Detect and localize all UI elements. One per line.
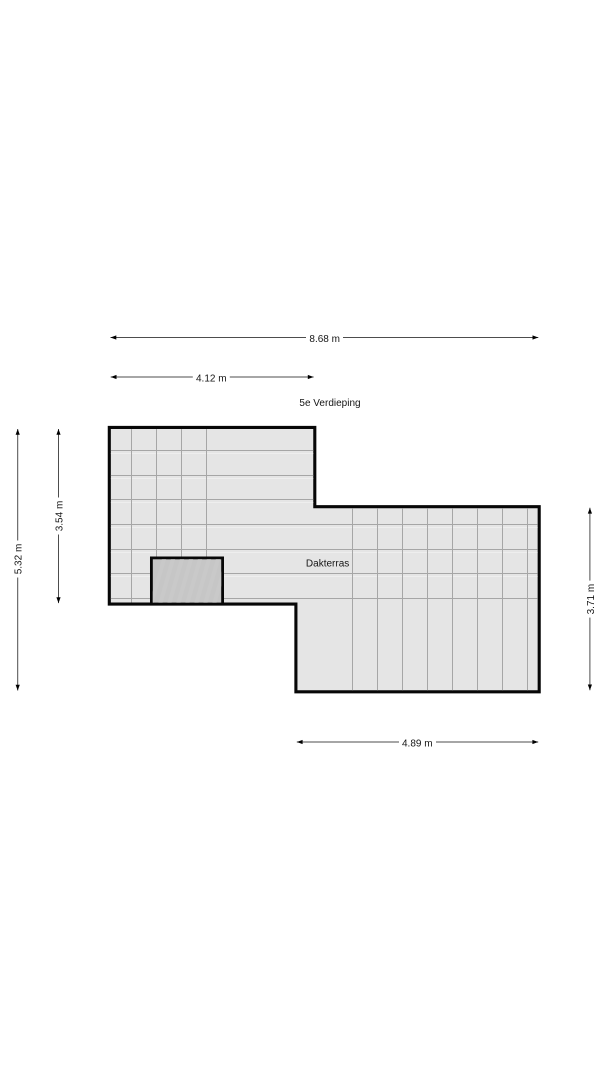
svg-text:5.32 m: 5.32 m [14, 544, 25, 575]
svg-text:8.68 m: 8.68 m [309, 334, 340, 345]
svg-text:4.12 m: 4.12 m [196, 373, 227, 384]
svg-text:5e Verdieping: 5e Verdieping [299, 398, 360, 409]
svg-text:3.71 m: 3.71 m [586, 584, 597, 615]
svg-text:4.89 m: 4.89 m [402, 738, 433, 749]
svg-text:Dakterras: Dakterras [306, 559, 349, 570]
svg-text:3.54 m: 3.54 m [55, 501, 66, 532]
